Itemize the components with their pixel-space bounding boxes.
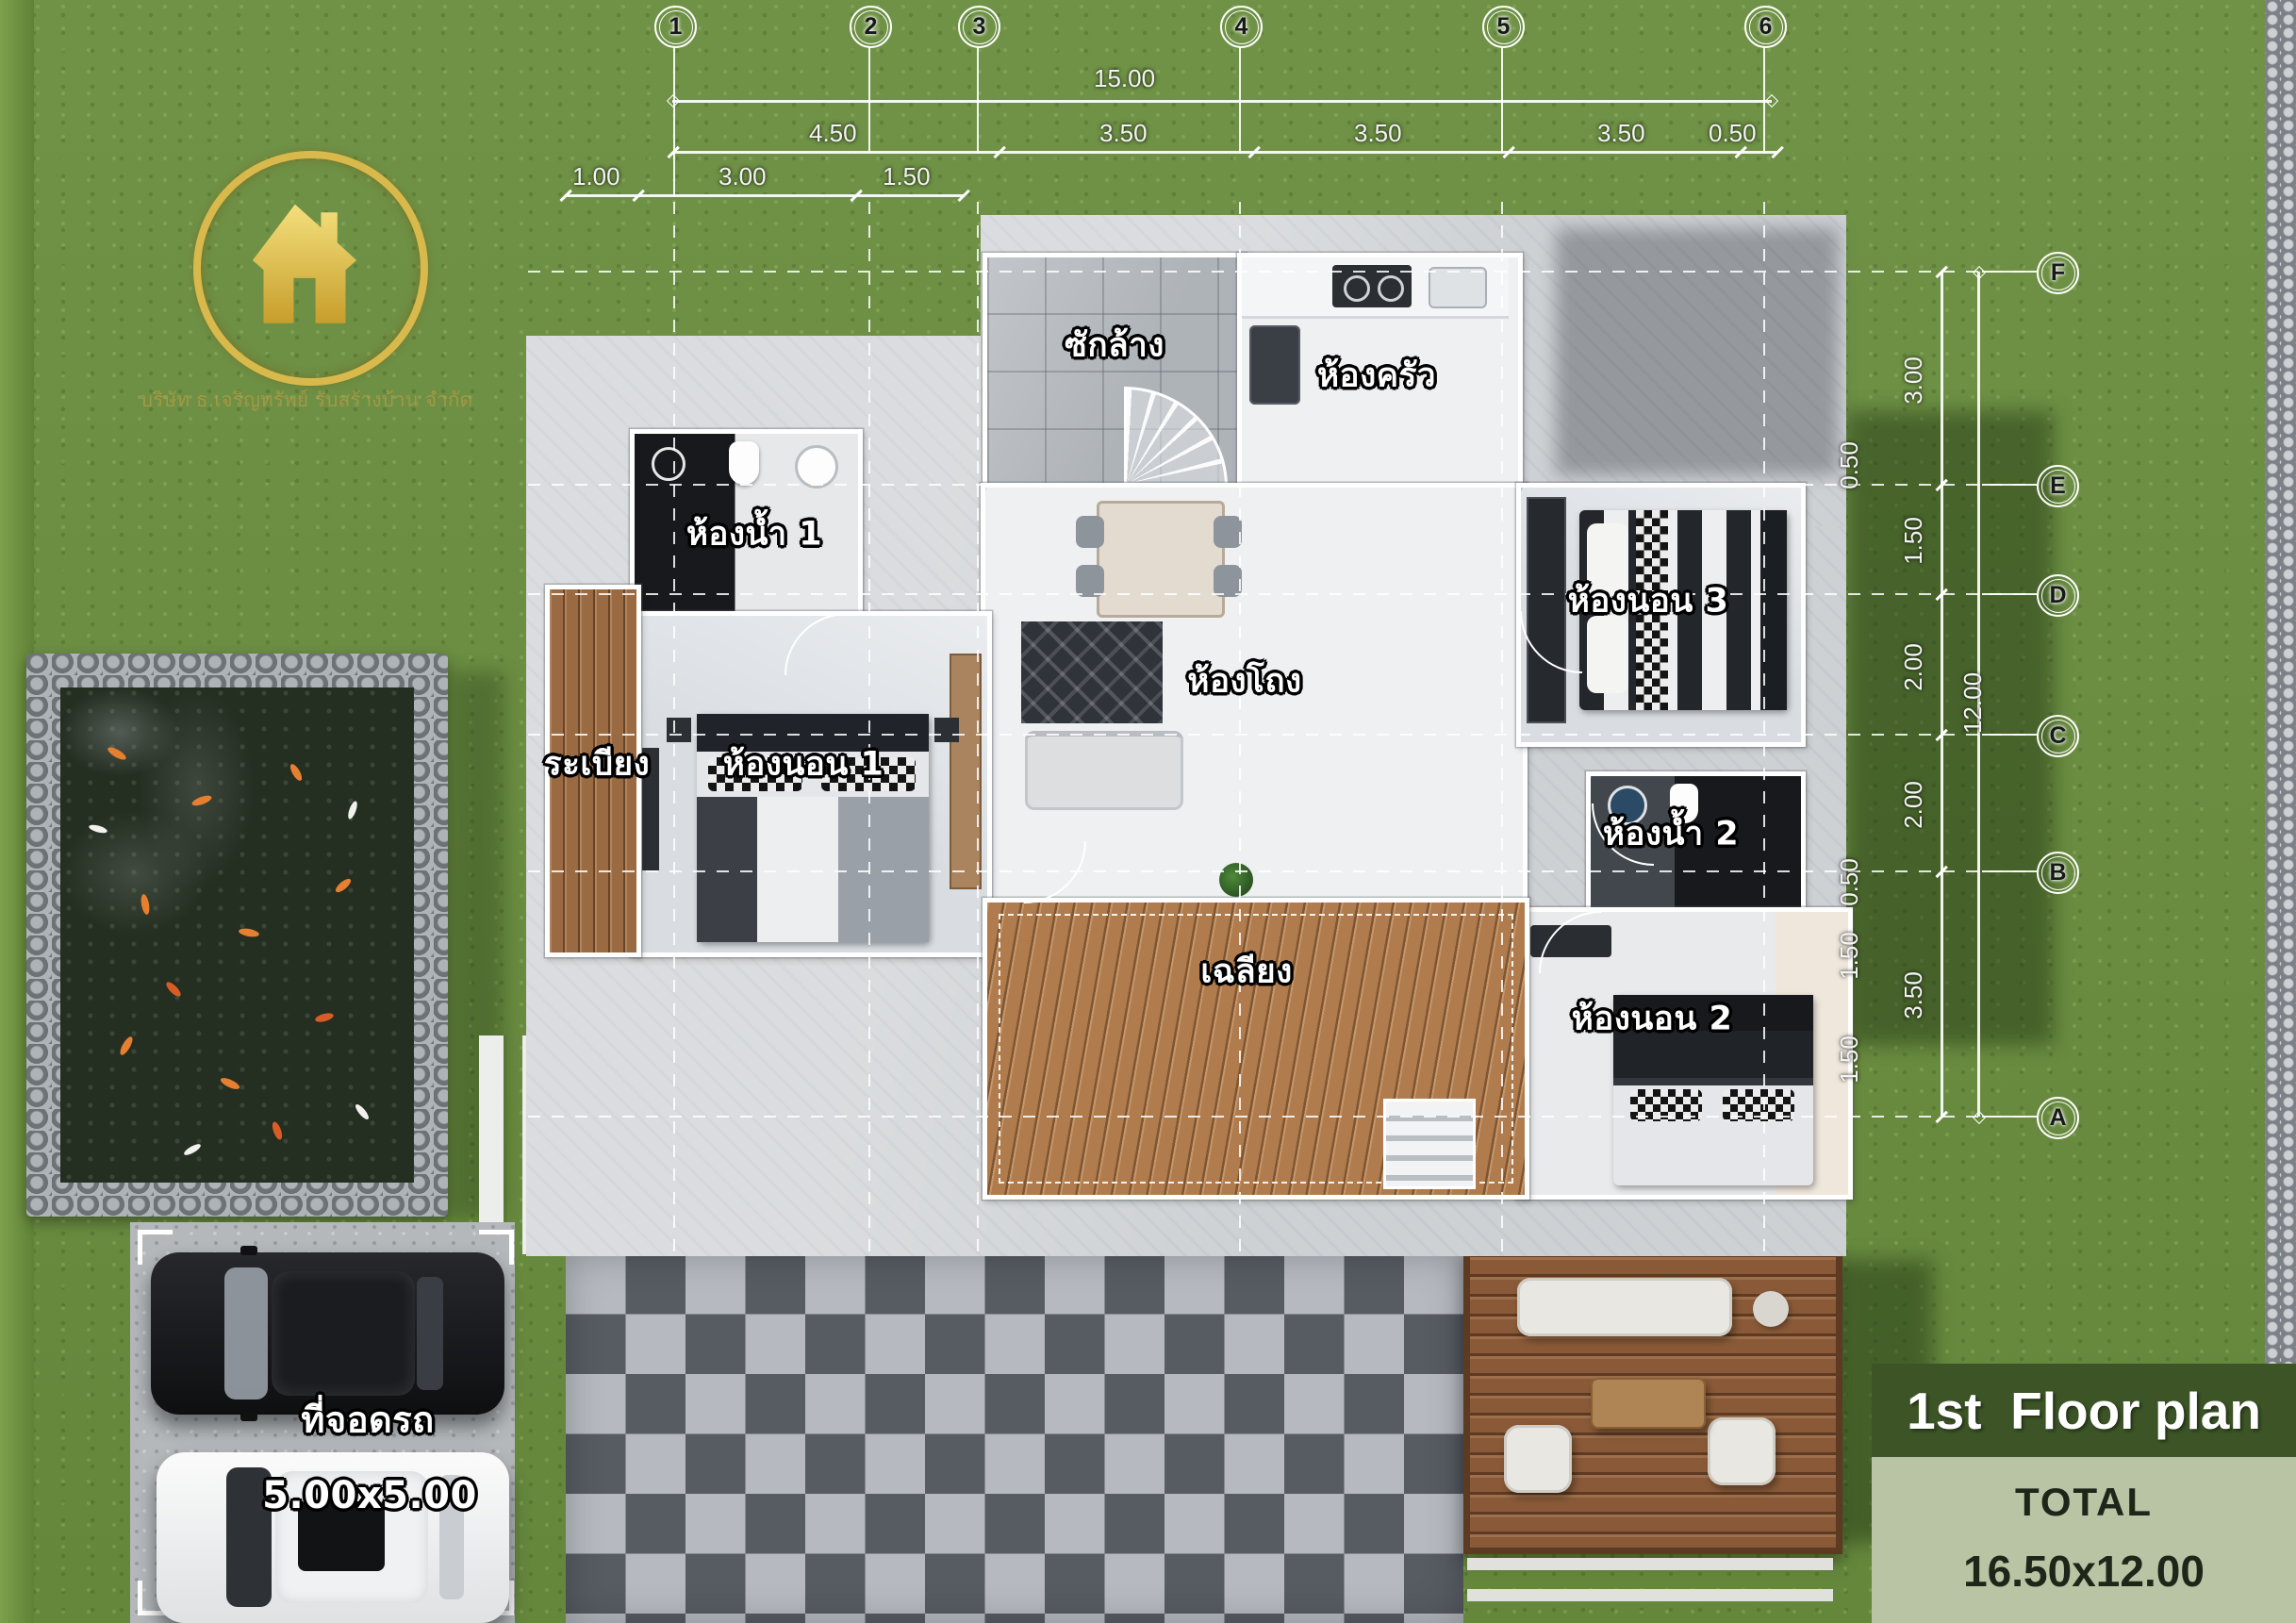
grid-marker-row-B: B: [2037, 852, 2079, 894]
outdoor-chair: [1708, 1417, 1776, 1485]
gridline-row: [528, 1116, 2037, 1118]
dining-chair: [1076, 565, 1104, 597]
house-shadow: [1846, 411, 2054, 1045]
grid-marker-row-D: D: [2037, 574, 2079, 617]
logo-tagline: บริษัท ธ.เจริญทรัพย์ รับสร้างบ้าน จำกัด: [52, 385, 561, 416]
porch-steps: [1383, 1099, 1476, 1189]
room-label-kitchen: ห้องครัว: [1317, 350, 1436, 402]
grid-marker-col-4: 4: [1220, 6, 1263, 48]
dim-label: 3.50: [1099, 119, 1148, 148]
dim-line-chain-right: [1941, 272, 1943, 1117]
gridline-col: [1763, 202, 1765, 1254]
floor-plan-canvas: บริษัท ธ.เจริญทรัพย์ รับสร้างบ้าน จำกัด: [0, 0, 2296, 1623]
dim-label: 0.50: [1709, 119, 1757, 148]
grid-marker-col-2: 2: [850, 6, 892, 48]
outdoor-chair: [1504, 1425, 1572, 1493]
shower-head: [652, 447, 685, 481]
coffee-table: [1591, 1378, 1706, 1429]
room-label-balcony: ระเบียง: [544, 738, 650, 790]
outdoor-deck: [1463, 1250, 1842, 1554]
pillow: [1587, 616, 1628, 693]
total-panel: TOTAL 16.50x12.00: [1872, 1457, 2296, 1623]
sink-basin: [795, 445, 838, 489]
sofa: [1025, 731, 1183, 810]
dim-label: 1.50: [1899, 517, 1928, 565]
parking-label: ที่จอดรถ: [301, 1391, 434, 1449]
grid-marker-row-F: F: [2037, 252, 2079, 294]
dim-label: 1.50: [1835, 1035, 1864, 1084]
parking-size-label: 5.00x5.00: [262, 1474, 477, 1517]
total-label: TOTAL: [1872, 1480, 2296, 1525]
gridline-row: [528, 484, 2037, 486]
room-label-bath2: ห้องน้ำ 2: [1603, 808, 1739, 860]
room-label-bed2: ห้องนอน 2: [1572, 993, 1733, 1045]
potted-plant: [1219, 863, 1253, 897]
dim-label: 15.00: [1094, 64, 1155, 93]
gridline-col: [1501, 202, 1503, 1254]
grid-marker-col-1: 1: [654, 6, 697, 48]
dining-chair: [1076, 516, 1104, 548]
koi-pond: [26, 654, 448, 1217]
dim-line-sub-top: [565, 194, 965, 197]
duvet: [697, 797, 929, 942]
dim-line-chain-top: [672, 151, 1778, 154]
room-label-porch: เฉลียง: [1200, 946, 1292, 998]
nightstand: [667, 718, 691, 742]
gridline-row: [528, 870, 2037, 872]
room-label-laundry: ซักล้าง: [1065, 320, 1165, 372]
grid-marker-col-5: 5: [1482, 6, 1525, 48]
total-value: 16.50x12.00: [1872, 1546, 2296, 1597]
dim-label: 4.50: [809, 119, 857, 148]
dim-label: 2.00: [1899, 643, 1928, 691]
floorplan-title-band: 1st Floor plan: [1872, 1364, 2296, 1457]
gridline-row: [528, 593, 2037, 595]
dim-label: 3.50: [1354, 119, 1402, 148]
dim-line-overall-top: [672, 100, 1772, 103]
gridline-col: [977, 202, 979, 1254]
dim-label: 3.00: [1899, 356, 1928, 405]
grid-marker-col-6: 6: [1744, 6, 1787, 48]
deck-side-table: [1753, 1291, 1789, 1327]
kitchen-sink: [1429, 267, 1487, 308]
dim-label: 3.00: [719, 162, 767, 191]
gridline-row: [528, 734, 2037, 736]
grid-marker-row-C: C: [2037, 715, 2079, 757]
floorplan-title: 1st Floor plan: [1907, 1381, 2261, 1441]
gridline-col: [868, 202, 870, 1254]
grid-marker-col-3: 3: [958, 6, 1000, 48]
dim-label: 2.00: [1899, 781, 1928, 829]
dining-chair: [1214, 565, 1242, 597]
dim-label: 12.00: [1958, 672, 1988, 734]
dim-label: 0.50: [1835, 441, 1864, 489]
room-porch: [983, 898, 1529, 1200]
room-label-bed1: ห้องนอน 1: [723, 738, 884, 790]
gridline-col: [673, 202, 675, 1254]
dim-label: 1.00: [572, 162, 620, 191]
deck-paver-strip: [1467, 1558, 1833, 1618]
toilet: [729, 441, 759, 485]
gridline-col: [1239, 202, 1241, 1254]
dining-table: [1097, 501, 1225, 618]
checker-patio: [566, 1254, 1463, 1623]
dim-label: 3.50: [1597, 119, 1645, 148]
grid-marker-row-A: A: [2037, 1097, 2079, 1139]
gridline-row: [528, 271, 2037, 273]
dining-chair: [1214, 516, 1242, 548]
room-label-bed3: ห้องนอน 3: [1568, 575, 1729, 627]
wardrobe: [1527, 497, 1566, 723]
dim-label: 0.50: [1835, 858, 1864, 906]
koi-fish: [60, 687, 414, 1183]
dim-label: 3.50: [1899, 971, 1928, 1019]
wall-shadow: [1556, 228, 1839, 475]
refrigerator: [1249, 325, 1300, 405]
room-label-bath1: ห้องน้ำ 1: [686, 508, 822, 560]
house-logo-icon: [234, 193, 375, 330]
dim-label: 1.50: [883, 162, 931, 191]
room-label-hall: ห้องโถง: [1187, 655, 1301, 707]
kitchen-counter: [1242, 257, 1509, 319]
dim-label: 1.50: [1835, 932, 1864, 980]
nightstand: [934, 718, 959, 742]
area-rug: [1021, 621, 1163, 723]
outdoor-sofa: [1517, 1278, 1732, 1336]
grid-marker-row-E: E: [2037, 465, 2079, 507]
